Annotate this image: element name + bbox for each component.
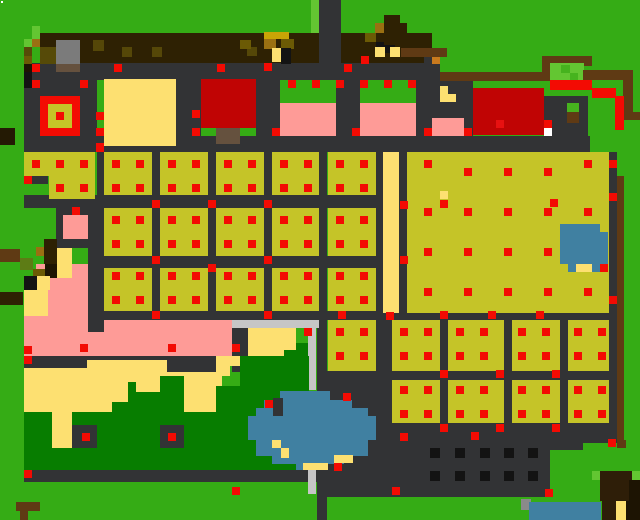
unit-dot [32, 160, 40, 168]
road [152, 152, 160, 320]
sand [576, 264, 592, 272]
unit-dot [480, 352, 488, 360]
unit-dot [208, 200, 216, 208]
unit-dot [248, 216, 256, 224]
unit-dot [152, 311, 160, 319]
forest [216, 386, 240, 412]
unit-dot [456, 410, 464, 418]
sand [57, 248, 72, 278]
building [360, 103, 416, 136]
unit-dot [304, 240, 312, 248]
scrub [24, 72, 32, 88]
unit-dot [518, 328, 526, 336]
unit-dot [80, 184, 88, 192]
harbor [529, 502, 601, 520]
unit-dot [550, 199, 558, 207]
unit-dot [304, 328, 312, 336]
pond [248, 416, 376, 440]
dock [273, 398, 283, 416]
log [0, 249, 20, 262]
unit-dot [192, 128, 200, 136]
unit-dot [280, 160, 288, 168]
unit-dot [456, 352, 464, 360]
road [319, 0, 341, 63]
unit-dot [24, 470, 32, 478]
beach [216, 376, 222, 386]
bush [570, 73, 578, 80]
unit-dot [456, 386, 464, 394]
bush [32, 26, 40, 40]
dirt-road [617, 176, 624, 443]
unit-dot [136, 272, 144, 280]
unit-dot [360, 296, 368, 304]
unit-dot [336, 184, 344, 192]
unit-dot [24, 356, 32, 364]
scrub [93, 40, 104, 51]
unit-dot [192, 240, 200, 248]
unit-dot [424, 160, 432, 168]
unit-dot [56, 160, 64, 168]
unit-dot [504, 168, 512, 176]
unit-dot [600, 264, 608, 272]
unit-dot [584, 208, 592, 216]
unit-dot [464, 128, 472, 136]
unit-dot [168, 160, 176, 168]
unit-dot [400, 328, 408, 336]
car-dot [430, 448, 440, 458]
unit-dot [96, 128, 104, 136]
road [376, 152, 383, 320]
car-dot [528, 448, 538, 458]
unit-dot [312, 80, 320, 88]
red-path [615, 96, 624, 130]
unit-dot [112, 160, 120, 168]
unit-dot [360, 240, 368, 248]
unit-dot [542, 328, 550, 336]
game-map[interactable] [0, 0, 640, 520]
unit-dot [82, 433, 90, 441]
unit-dot [224, 272, 232, 280]
road [264, 152, 272, 320]
unit-dot [542, 386, 550, 394]
path [308, 328, 316, 390]
unit-dot [248, 184, 256, 192]
unit-dot [544, 248, 552, 256]
unit-dot [608, 439, 616, 447]
unit-dot [168, 272, 176, 280]
road [376, 320, 392, 371]
hay [440, 86, 448, 94]
dirt-path [20, 511, 28, 520]
road [208, 152, 216, 320]
unit-dot [24, 346, 32, 354]
unit-dot [32, 64, 40, 72]
unit-dot [584, 288, 592, 296]
unit-dot [440, 311, 448, 319]
unit-dot [344, 64, 352, 72]
unit-dot [424, 352, 432, 360]
unit-dot [336, 240, 344, 248]
path [308, 468, 316, 494]
unit-dot [544, 168, 552, 176]
forest [128, 382, 136, 412]
unit-dot [336, 328, 344, 336]
unit-dot [360, 184, 368, 192]
unit-dot [598, 352, 606, 360]
unit-dot [280, 240, 288, 248]
unit-dot [136, 296, 144, 304]
unit-dot [424, 328, 432, 336]
road [24, 470, 317, 482]
moss [20, 258, 33, 270]
unit-dot [536, 311, 544, 319]
unit-dot [80, 344, 88, 352]
marker [544, 128, 552, 136]
unit-dot [112, 296, 120, 304]
unit-dot [304, 216, 312, 224]
bush [631, 471, 640, 480]
unit-dot [288, 80, 296, 88]
scrub [36, 247, 44, 256]
unit-dot [574, 352, 582, 360]
beach [24, 368, 87, 412]
scrub [32, 39, 40, 47]
pond [280, 391, 330, 400]
hay [375, 47, 385, 57]
unit-dot [280, 184, 288, 192]
unit-dot [360, 160, 368, 168]
car-dot [430, 471, 440, 481]
building [473, 88, 544, 135]
unit-dot [424, 248, 432, 256]
building [201, 79, 256, 128]
unit-dot [574, 410, 582, 418]
red-path [592, 88, 616, 98]
beach [216, 356, 240, 366]
unit-dot [400, 201, 408, 209]
car-dot [455, 448, 465, 458]
unit-dot [464, 168, 472, 176]
unit-dot [336, 160, 344, 168]
unit-dot [136, 240, 144, 248]
unit-dot [304, 184, 312, 192]
unit-dot [136, 216, 144, 224]
unit-dot [192, 296, 200, 304]
unit-dot [542, 410, 550, 418]
unit-dot [136, 160, 144, 168]
unit-dot [232, 344, 240, 352]
unit-dot [518, 410, 526, 418]
unit-dot [424, 128, 432, 136]
sand [616, 501, 626, 520]
unit-dot [464, 248, 472, 256]
hay [440, 191, 448, 199]
unit-dot [456, 328, 464, 336]
unit-dot [360, 80, 368, 88]
unit-dot [400, 386, 408, 394]
crate [432, 56, 440, 64]
dirt-road [617, 440, 626, 448]
unit-dot [545, 489, 553, 497]
shrine-core [56, 112, 64, 120]
unit-dot [464, 208, 472, 216]
unit-dot [480, 386, 488, 394]
hedge [311, 0, 319, 33]
unit-dot [400, 256, 408, 264]
unit-dot [574, 328, 582, 336]
unit-dot [96, 112, 104, 120]
unit-dot [424, 208, 432, 216]
building [432, 118, 464, 136]
parking-lot [550, 443, 583, 450]
sand [303, 463, 328, 470]
building [63, 215, 88, 239]
car-dot [504, 448, 514, 458]
warehouse-door [56, 64, 80, 72]
unit-dot [609, 193, 617, 201]
unit-dot [280, 296, 288, 304]
unit-dot [208, 264, 216, 272]
unit-dot [304, 296, 312, 304]
scrub [375, 23, 384, 33]
sand [334, 455, 353, 463]
tree [400, 23, 407, 45]
hay [440, 94, 456, 102]
unit-dot [32, 80, 40, 88]
road [88, 248, 104, 332]
unit-dot [518, 352, 526, 360]
unit-dot [336, 216, 344, 224]
unit-dot [504, 208, 512, 216]
building-light [496, 120, 504, 128]
car-dot [528, 471, 538, 481]
unit-dot [392, 487, 400, 495]
unit-dot [272, 128, 280, 136]
road [97, 256, 383, 268]
unit-dot [504, 288, 512, 296]
dirt-path [16, 502, 40, 511]
unit-dot [424, 386, 432, 394]
scrub [24, 64, 32, 72]
unit-dot [168, 433, 176, 441]
unit-dot [496, 424, 504, 432]
car-dot [504, 471, 514, 481]
car-dot [480, 448, 490, 458]
unit-dot [609, 160, 617, 168]
pond [568, 264, 576, 272]
sand [272, 440, 281, 448]
unit-dot [280, 272, 288, 280]
forest [136, 392, 160, 412]
hay [272, 48, 281, 62]
unit-dot [360, 328, 368, 336]
unit-dot [168, 296, 176, 304]
unit-dot [584, 160, 592, 168]
unit-dot [360, 352, 368, 360]
unit-dot [192, 160, 200, 168]
red-path [550, 80, 592, 90]
unit-dot [248, 272, 256, 280]
sand [24, 290, 48, 316]
tree [384, 15, 400, 45]
unit-dot [424, 288, 432, 296]
building [280, 103, 336, 136]
unit-dot [265, 400, 273, 408]
car-dot [455, 471, 465, 481]
scrub [24, 47, 32, 56]
unit-dot [471, 432, 479, 440]
unit-dot [192, 216, 200, 224]
unit-dot [112, 240, 120, 248]
scrub [365, 33, 376, 42]
speck [1, 1, 3, 3]
dirt-path [440, 72, 552, 81]
unit-dot [224, 216, 232, 224]
unit-dot [361, 56, 369, 64]
lodge [600, 471, 632, 501]
unit-dot [56, 184, 64, 192]
beach [52, 412, 72, 448]
shadow [281, 48, 291, 64]
wall [232, 320, 319, 328]
unit-dot [168, 344, 176, 352]
marker [544, 120, 552, 128]
unit-dot [168, 184, 176, 192]
unit-dot [440, 200, 448, 208]
lodge [629, 480, 640, 501]
unit-dot [542, 352, 550, 360]
unit-dot [112, 216, 120, 224]
unit-dot [544, 288, 552, 296]
building [104, 79, 176, 146]
unit-dot [152, 200, 160, 208]
unit-dot [264, 63, 272, 71]
unit-dot [264, 200, 272, 208]
rock [0, 128, 15, 145]
unit-dot [408, 80, 416, 88]
unit-dot [384, 80, 392, 88]
unit-dot [224, 240, 232, 248]
sand [281, 448, 289, 458]
unit-dot [192, 184, 200, 192]
unit-dot [360, 272, 368, 280]
forest [160, 376, 184, 412]
scrub [152, 47, 162, 57]
sand [37, 276, 50, 290]
pond [560, 224, 600, 264]
plaza [24, 320, 232, 356]
lodge [602, 501, 616, 520]
unit-dot [80, 160, 88, 168]
unit-dot [496, 370, 504, 378]
unit-dot [24, 176, 32, 184]
unit-dot [112, 272, 120, 280]
bush [24, 39, 32, 47]
unit-dot [386, 312, 394, 320]
log [44, 239, 57, 264]
forest [112, 402, 128, 412]
warehouse [56, 40, 80, 64]
unit-dot [352, 128, 360, 136]
shadow [24, 276, 37, 290]
unit-dot [114, 64, 122, 72]
dirt-path [623, 80, 633, 113]
unit-dot [598, 386, 606, 394]
road [560, 320, 568, 423]
hay-strip [383, 152, 399, 313]
road [399, 152, 407, 313]
tree [296, 343, 308, 356]
dirt-path [623, 112, 640, 120]
unit-dot [96, 143, 104, 151]
log [0, 292, 23, 305]
unit-dot [336, 272, 344, 280]
scrub [122, 47, 132, 57]
unit-dot [598, 410, 606, 418]
unit-dot [192, 110, 200, 118]
road-stub [32, 176, 48, 184]
bush [567, 103, 579, 112]
scrub [240, 40, 251, 49]
unit-dot [338, 311, 346, 319]
dirt [567, 112, 579, 123]
unit-dot [574, 386, 582, 394]
unit-dot [248, 296, 256, 304]
road [24, 63, 440, 80]
unit-dot [224, 296, 232, 304]
unit-dot [598, 328, 606, 336]
unit-dot [192, 272, 200, 280]
unit-dot [464, 288, 472, 296]
unit-dot [72, 207, 80, 215]
unit-dot [248, 160, 256, 168]
unit-dot [168, 216, 176, 224]
unit-dot [424, 410, 432, 418]
beach [216, 366, 230, 376]
hay [390, 47, 400, 57]
unit-dot [248, 240, 256, 248]
unit-dot [152, 256, 160, 264]
hay [264, 32, 289, 39]
unit-dot [343, 393, 351, 401]
unit-dot [168, 240, 176, 248]
unit-dot [280, 216, 288, 224]
unit-dot [224, 184, 232, 192]
unit-dot [336, 352, 344, 360]
road [167, 356, 216, 372]
unit-dot [480, 410, 488, 418]
road [504, 320, 512, 423]
lodge [626, 501, 640, 520]
car-dot [480, 471, 490, 481]
unit-dot [304, 160, 312, 168]
unit-dot [334, 463, 342, 471]
unit-dot [80, 80, 88, 88]
unit-dot [544, 208, 552, 216]
building-door [216, 128, 240, 144]
unit-dot [224, 160, 232, 168]
unit-dot [400, 433, 408, 441]
unit-dot [400, 352, 408, 360]
dirt-path [583, 70, 633, 80]
unit-dot [264, 256, 272, 264]
scrub [24, 56, 32, 64]
unit-dot [336, 296, 344, 304]
unit-dot [488, 311, 496, 319]
unit-dot [360, 216, 368, 224]
unit-dot [504, 248, 512, 256]
unit-dot [336, 80, 344, 88]
